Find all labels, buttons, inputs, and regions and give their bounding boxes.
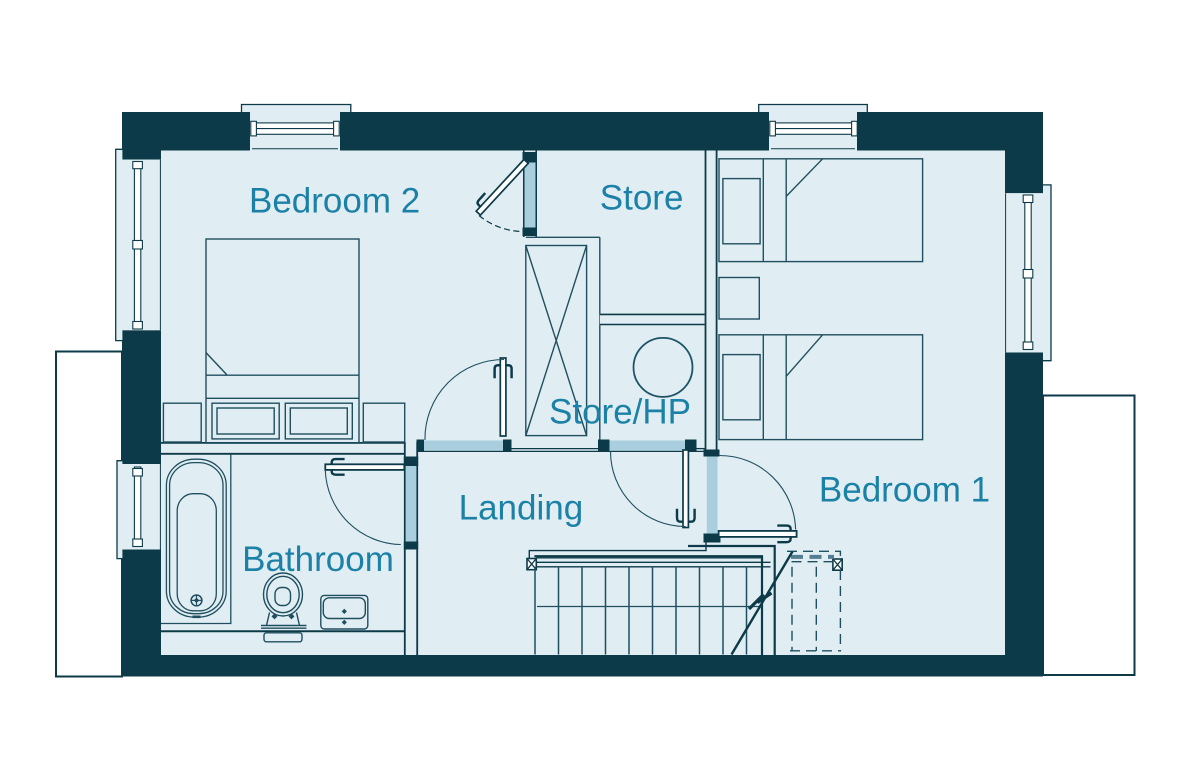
svg-text:Bedroom 1: Bedroom 1 [819,470,990,509]
svg-text:Store/HP: Store/HP [549,393,691,432]
svg-text:Bathroom: Bathroom [242,540,394,579]
svg-text:Store: Store [600,179,684,218]
svg-text:Bedroom 2: Bedroom 2 [249,182,420,221]
svg-text:Landing: Landing [459,489,584,528]
